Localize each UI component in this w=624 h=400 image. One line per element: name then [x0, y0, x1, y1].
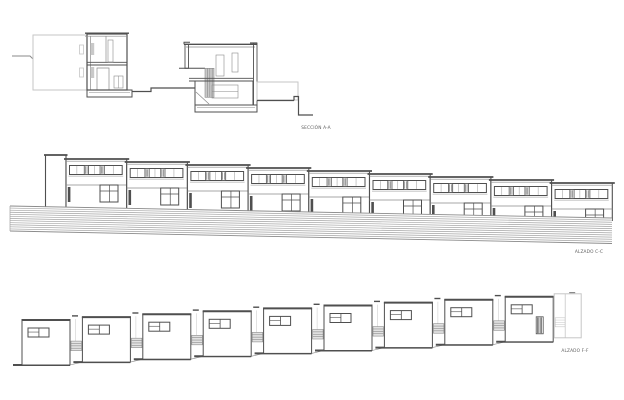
stair-tower [44, 155, 68, 210]
section-drawing [12, 33, 313, 115]
ribbon-window [129, 169, 184, 180]
ghost-building-right [257, 82, 298, 100]
drawing-sheet: SECCIÓN A-A ALZADO C-C ALZADO F-F [0, 0, 624, 400]
cross-window [343, 197, 361, 214]
ribbon-window [69, 166, 124, 177]
ghost-building-left [12, 35, 87, 90]
street-elevation-label: ALZADO C-C [575, 249, 603, 255]
patio-window [390, 311, 411, 320]
house-unit [368, 174, 433, 218]
patio-unit [130, 310, 202, 362]
ribbon-window [311, 178, 366, 189]
street-elevation-drawing [10, 155, 615, 244]
patio-window [88, 325, 109, 334]
ribbon-window [433, 184, 488, 195]
gap-strip [131, 313, 142, 348]
patio-unit [432, 296, 504, 348]
ribbon-window [190, 172, 245, 183]
cross-window [100, 185, 118, 202]
wall-hatch [91, 43, 94, 55]
architectural-drawing-svg: SECCIÓN A-A ALZADO C-C ALZADO F-F [0, 0, 624, 400]
ghost-end-volume [554, 293, 581, 338]
cross-window [161, 188, 179, 205]
wall-hatch [91, 67, 94, 78]
gap-strip [252, 307, 263, 342]
ribbon-window [372, 181, 427, 192]
house-unit [185, 165, 250, 214]
patio-unit [13, 316, 82, 365]
section-building-left [85, 33, 132, 97]
house-unit [428, 177, 493, 220]
patio-window [511, 305, 532, 314]
ground-line-mid [132, 88, 195, 92]
section-building-right [179, 42, 257, 112]
gap-strip [373, 301, 384, 336]
house-unit [125, 162, 190, 213]
patio-window [451, 308, 472, 317]
patio-window [209, 319, 230, 328]
patio-elevation-label: ALZADO F-F [561, 348, 589, 354]
patio-unit [312, 301, 384, 353]
gap-strip [71, 316, 82, 351]
patio-window [149, 322, 170, 331]
house-unit [64, 159, 129, 212]
patio-unit [70, 313, 142, 365]
gap-strip [313, 304, 324, 339]
patio-elevation-drawing [13, 293, 581, 365]
house-unit [307, 171, 372, 217]
ground-line-right [257, 97, 313, 116]
cross-window [282, 194, 300, 211]
ribbon-window [493, 187, 548, 198]
ribbon-window [554, 190, 609, 201]
patio-unit [191, 307, 263, 359]
ribbon-window [251, 175, 306, 186]
cross-window [221, 191, 239, 208]
house-unit [246, 168, 311, 215]
gap-strip [433, 299, 444, 334]
section-label: SECCIÓN A-A [301, 124, 331, 131]
louver-door [536, 317, 543, 334]
patio-unit [372, 299, 444, 351]
patio-window [270, 316, 291, 325]
patio-window [330, 314, 351, 323]
patio-window [28, 328, 49, 337]
gap-strip [494, 296, 505, 331]
gap-strip [192, 310, 203, 345]
patio-unit [251, 304, 323, 356]
